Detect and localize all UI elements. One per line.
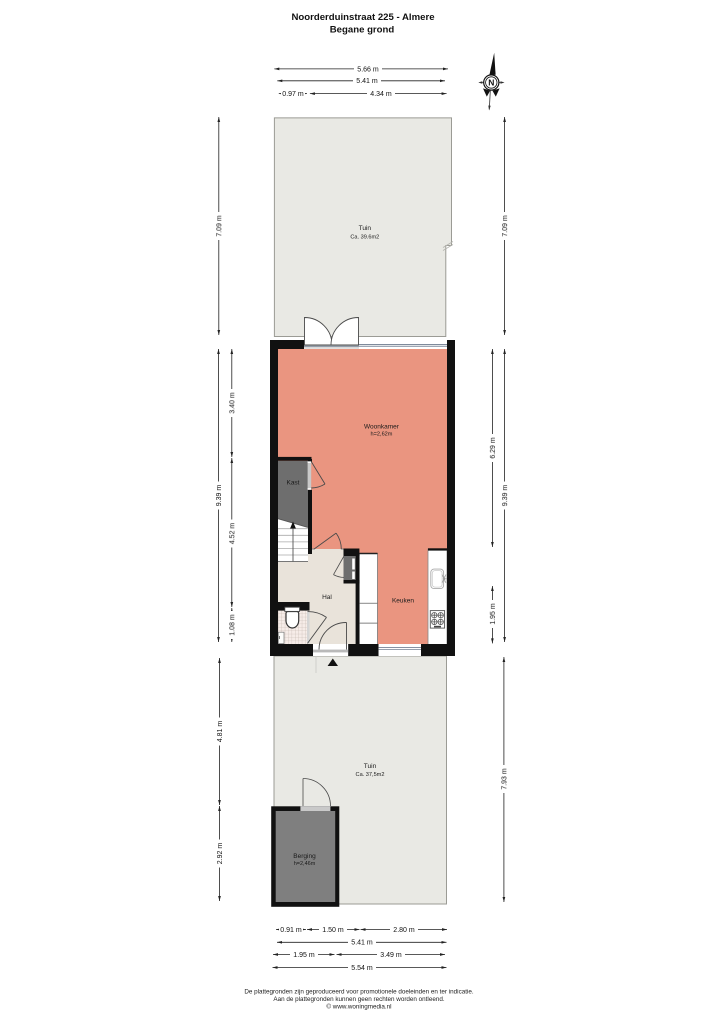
svg-text:9.39 m: 9.39 m (216, 485, 223, 507)
svg-text:Keuken: Keuken (392, 598, 414, 605)
svg-text:6.29 m: 6.29 m (490, 437, 497, 459)
svg-text:4.52 m: 4.52 m (229, 523, 236, 545)
svg-text:Berging: Berging (293, 853, 316, 860)
svg-text:5.54 m: 5.54 m (351, 965, 373, 972)
svg-text:5.41 m: 5.41 m (351, 940, 373, 947)
svg-text:2.80 m: 2.80 m (393, 927, 415, 934)
svg-text:3.40 m: 3.40 m (229, 392, 236, 414)
svg-text:h=2,46m: h=2,46m (294, 861, 316, 867)
svg-text:1.95 m: 1.95 m (490, 603, 497, 625)
svg-text:7.09 m: 7.09 m (502, 215, 509, 237)
svg-text:Woonkamer: Woonkamer (364, 424, 400, 431)
svg-text:Aan de plattegronden kunnen ge: Aan de plattegronden kunnen geen rechten… (273, 996, 444, 1003)
svg-text:© www.woningmedia.nl: © www.woningmedia.nl (326, 1003, 391, 1011)
svg-text:Ca. 39.6m2: Ca. 39.6m2 (350, 235, 379, 241)
svg-text:Noorderduinstraat 225 - Almere: Noorderduinstraat 225 - Almere (291, 12, 434, 23)
svg-text:5.41 m: 5.41 m (356, 78, 378, 85)
svg-text:Tuin: Tuin (364, 763, 377, 770)
svg-text:4.81 m: 4.81 m (217, 721, 224, 743)
svg-text:9.39 m: 9.39 m (502, 485, 509, 507)
svg-text:1.95 m: 1.95 m (293, 952, 315, 959)
svg-text:2.92 m: 2.92 m (217, 843, 224, 865)
svg-text:Tuin: Tuin (359, 225, 372, 232)
svg-text:Hal: Hal (322, 594, 332, 601)
svg-text:h=2,62m: h=2,62m (371, 432, 393, 438)
svg-text:7.09 m: 7.09 m (216, 215, 223, 237)
svg-text:Kast: Kast (286, 480, 299, 487)
svg-text:7.93 m: 7.93 m (501, 768, 508, 790)
svg-text:4.34 m: 4.34 m (370, 91, 392, 98)
svg-text:0.97 m: 0.97 m (282, 91, 304, 98)
svg-text:1.08 m: 1.08 m (229, 614, 236, 636)
svg-text:0.91 m: 0.91 m (280, 927, 302, 934)
svg-text:1.50 m: 1.50 m (322, 927, 344, 934)
svg-text:N: N (488, 78, 494, 88)
svg-text:5.66 m: 5.66 m (357, 66, 379, 73)
svg-text:Ca. 37,5m2: Ca. 37,5m2 (356, 772, 385, 778)
svg-text:3.49 m: 3.49 m (380, 952, 402, 959)
svg-text:Begane grond: Begane grond (330, 25, 395, 36)
svg-text:De plattegronden zijn geproduc: De plattegronden zijn geproduceerd voor … (244, 989, 474, 996)
